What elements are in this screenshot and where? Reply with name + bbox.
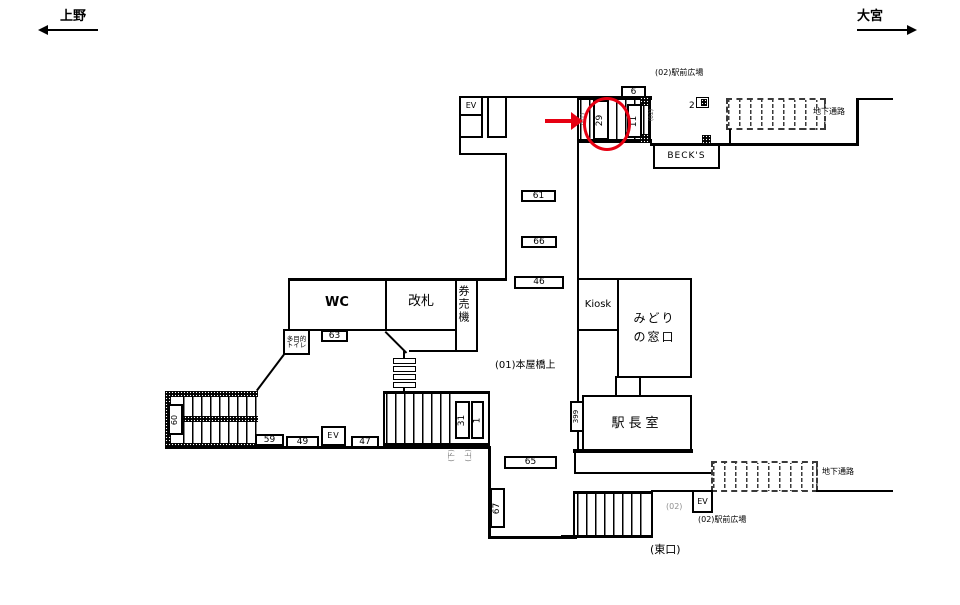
underpass-label-top: 地下通路 [812,108,846,116]
east-stair-top [573,491,653,494]
plaza-label-bottom: (02)駅前広場 [698,516,746,524]
sign-6: 6 [621,86,646,98]
wall-west-diagonal [256,354,285,391]
wall-south-long [165,446,491,449]
door-marker-becks [702,135,711,144]
wall-corridor-right [577,143,579,279]
wall-ekicho-bottom-thick [573,449,693,453]
sign-67: 67 [490,488,505,528]
direction-omiya-label: 大宮 [857,10,883,23]
east-exit-label: (東口) [650,544,681,555]
wall-step-h [459,153,507,155]
sign-59: 59 [255,434,284,446]
underpass-stair-bottom [711,461,818,492]
gate-bar-1 [393,358,416,364]
east-stair-treads [577,494,649,536]
central-stair-right [488,391,490,446]
midori-annex [615,376,641,397]
elevator-top-shaft [459,114,483,138]
sign-46: 46 [514,276,564,289]
kenbaiki-label: 券売機 [458,285,469,324]
right-arrow-icon [907,25,917,35]
west-stair-treads-lower [183,422,258,443]
elevator-top: EV [459,96,483,116]
elevator-east: EV [692,490,713,513]
wall-wc-top [288,278,507,281]
marker-2-label: 2 [689,102,695,111]
pillar-top [487,96,507,138]
kiosk: Kiosk [577,278,619,331]
underpass-stair-top-connector [729,129,731,145]
wall-se-right-h [816,490,893,492]
wall-east-h [651,490,694,492]
gate-bar-3 [393,374,416,380]
accessible-toilet: 多目的 トイレ [283,329,310,355]
gate-connector-top [403,351,405,358]
sign-11-note: (02) [649,109,655,121]
honyabashi-label: (01)本屋橋上 [495,361,556,371]
plaza-label-top: (02)駅前広場 [655,69,703,77]
stair-down-label: (下) [449,449,456,461]
wall-kaisatsu-bottom [385,329,457,331]
sign-65: 65 [504,456,557,469]
gate-bar-2 [393,366,416,372]
elevator-south: EV [321,426,346,446]
station-master-room: 駅長室 [582,395,692,452]
plaza-note-bottom: (02) [666,503,682,511]
wall-concourse-left [505,153,507,280]
underpass-label-bottom: 地下通路 [822,468,854,476]
stair-up-label: (上) [466,449,473,461]
sign-399: 399 [570,401,584,432]
west-stair-treads-upper [183,397,258,416]
direction-omiya-line [857,29,909,31]
wall-se-h [574,472,714,474]
central-stair-top [383,391,490,394]
sign-60: 60 [168,404,183,435]
east-stair-right [651,491,653,538]
wall-se-step-v [574,449,576,474]
wc-label: WC [288,296,386,309]
direction-ueno-label: 上野 [60,10,86,23]
east-stair-left [573,491,575,538]
sign-61: 61 [521,190,556,202]
central-stair-bottom [383,443,490,446]
central-stair-left [383,391,385,446]
central-stair-treads [386,394,456,444]
becks-shop: BECK'S [653,144,720,169]
wall-ne-top [856,98,893,100]
sign-66: 66 [521,236,557,248]
left-arrow-icon [38,25,48,35]
station-floor-map: 上野 大宮 EV 29 (01) 11 (02) 6 (02)駅前広場 2 BE… [0,0,960,605]
sign-1: 1 [471,401,484,439]
underpass-stair-top [726,98,826,130]
wall-kenbaiki-bottom [409,350,478,352]
direction-ueno: 上野 [42,8,102,34]
kaisatsu-label: 改札 [387,295,455,308]
wall-kenbaiki-right [476,278,478,352]
wall-ne-vertical [856,98,859,146]
highlight-circle [583,97,631,151]
sign-63: 63 [321,330,348,342]
direction-ueno-line [46,29,98,31]
midori-no-madoguchi: みどり の窓口 [617,278,692,378]
sign-47: 47 [351,436,379,448]
direction-omiya: 大宮 [853,8,913,34]
sign-31: 31 [455,401,470,439]
sign-49: 49 [286,436,319,448]
marker-2-hatch [701,99,707,106]
